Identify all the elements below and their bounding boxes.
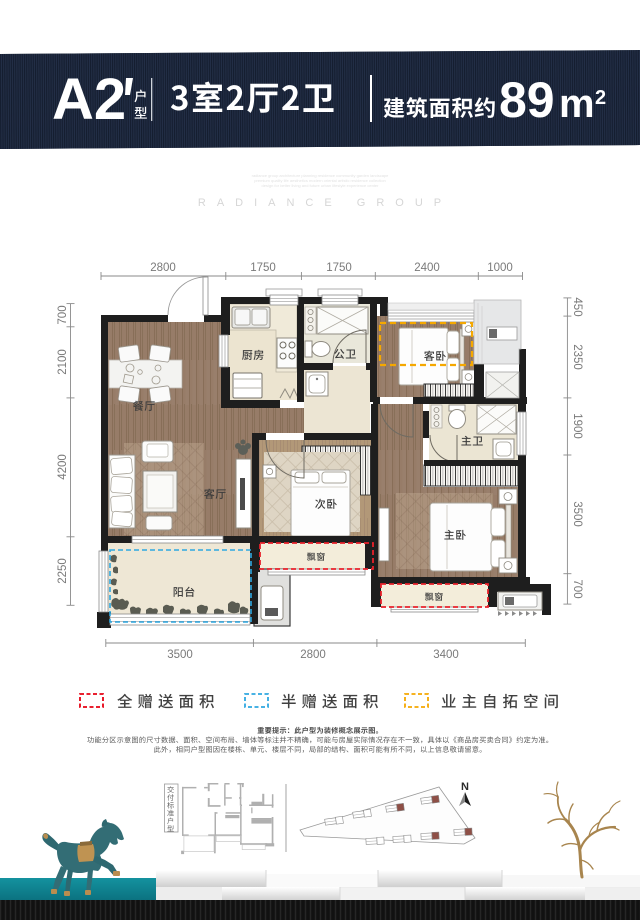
svg-text:m: m xyxy=(559,82,595,126)
svg-text:2100: 2100 xyxy=(57,349,69,375)
svg-text:A2: A2 xyxy=(52,67,126,132)
svg-text:2800: 2800 xyxy=(150,262,176,274)
svg-text:4200: 4200 xyxy=(57,454,69,480)
svg-text:1900: 1900 xyxy=(571,413,583,439)
svg-text:89: 89 xyxy=(499,72,555,128)
svg-text:1750: 1750 xyxy=(326,262,352,274)
svg-text:N: N xyxy=(461,781,469,793)
svg-text:3500: 3500 xyxy=(571,501,583,527)
svg-text:450: 450 xyxy=(571,297,583,316)
svg-text:2800: 2800 xyxy=(300,649,326,661)
svg-text:design for better living and f: design for better living and future urba… xyxy=(262,183,380,188)
svg-text:3500: 3500 xyxy=(167,649,193,661)
svg-text:3400: 3400 xyxy=(433,649,459,661)
svg-text:2350: 2350 xyxy=(571,344,583,370)
svg-text:700: 700 xyxy=(57,305,69,324)
svg-text:2400: 2400 xyxy=(414,262,440,274)
svg-text:2: 2 xyxy=(595,87,606,109)
svg-text:1750: 1750 xyxy=(250,262,276,274)
svg-text:2250: 2250 xyxy=(57,558,69,584)
svg-text:1000: 1000 xyxy=(487,262,513,274)
svg-text:700: 700 xyxy=(571,579,583,598)
svg-text:RADIANCE GROUP: RADIANCE GROUP xyxy=(198,197,452,209)
